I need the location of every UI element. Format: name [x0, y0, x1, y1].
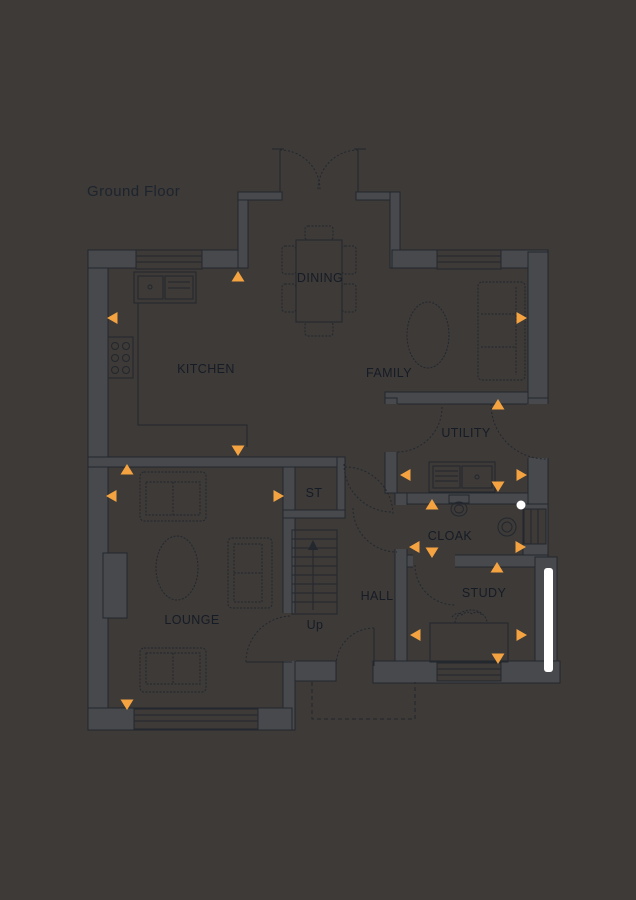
room-label-family: FAMILY: [366, 366, 412, 380]
room-labels: KITCHENDININGFAMILYUTILITYSTCLOAKHALLSTU…: [164, 271, 506, 632]
basin: [498, 518, 516, 536]
dimension-marker-lounge-right[interactable]: [274, 490, 285, 502]
room-label-utility: UTILITY: [441, 426, 491, 440]
cloak-window: [524, 509, 546, 544]
family-sofa: [478, 282, 525, 380]
room-label-study: STUDY: [462, 586, 507, 600]
french-doors: [272, 149, 366, 192]
lounge-rug: [156, 536, 198, 600]
lounge-window: [134, 709, 258, 729]
room-label-hall: HALL: [361, 589, 394, 603]
dimension-marker-kitchen-down[interactable]: [232, 446, 245, 457]
chimney-breast: [103, 553, 127, 618]
staircase: [292, 530, 337, 614]
dimension-marker-utility-left[interactable]: [400, 469, 411, 481]
dimension-marker-kitchen-up[interactable]: [232, 271, 245, 282]
floorplan-viewer: Ground Floor: [0, 0, 636, 900]
room-label-kitchen: KITCHEN: [177, 362, 235, 376]
lounge-sofa-bottom: [140, 648, 206, 692]
dimension-marker-study-left[interactable]: [410, 629, 421, 641]
hob: [108, 337, 133, 378]
lounge-sofa-top: [140, 472, 206, 521]
door-marker-dot[interactable]: [517, 501, 526, 510]
study-window: [437, 663, 501, 681]
room-label-st: ST: [306, 486, 323, 500]
dimension-marker-study-right[interactable]: [517, 629, 528, 641]
desk-chair: [452, 610, 487, 623]
utility-counter: [429, 462, 495, 492]
dimension-marker-cloak-left[interactable]: [409, 541, 420, 553]
family-table: [407, 302, 449, 368]
kitchen-window: [136, 250, 202, 269]
dimension-marker-utility-down[interactable]: [492, 482, 505, 493]
room-label-dining: DINING: [297, 271, 343, 285]
room-label-cloak: CLOAK: [428, 529, 473, 543]
floor-plan-svg: KITCHENDININGFAMILYUTILITYSTCLOAKHALLSTU…: [0, 0, 636, 900]
kitchen-counter-sink: [134, 272, 196, 303]
dimension-marker-utility-right[interactable]: [517, 469, 528, 481]
room-label-stairs-up: Up: [307, 618, 324, 632]
porch-outline: [312, 682, 415, 719]
lounge-sofa-right: [228, 538, 272, 608]
highlighted-window[interactable]: [544, 568, 553, 672]
dimension-marker-kitchen-left[interactable]: [107, 312, 118, 324]
room-label-lounge: LOUNGE: [164, 613, 219, 627]
family-window: [437, 250, 501, 269]
